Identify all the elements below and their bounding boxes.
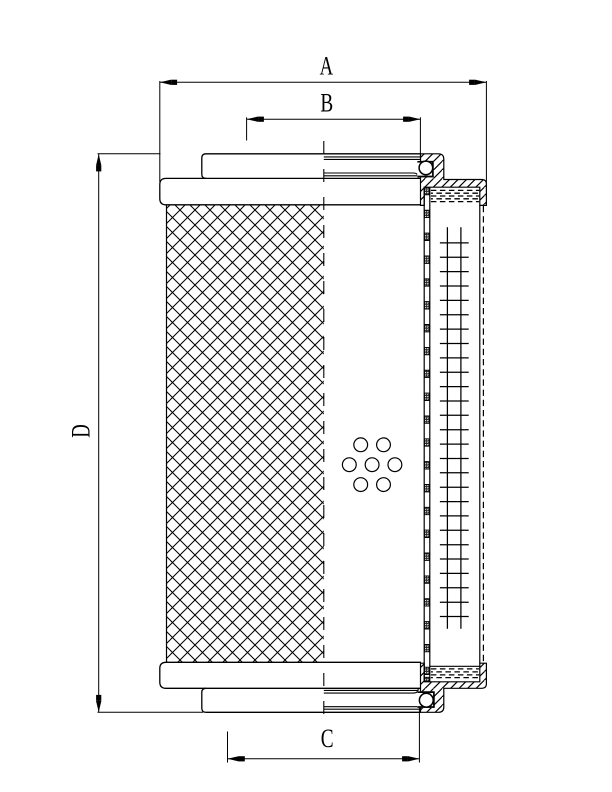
- svg-text:B: B: [320, 89, 333, 117]
- svg-text:D: D: [67, 424, 96, 438]
- svg-text:C: C: [321, 724, 334, 752]
- svg-text:A: A: [320, 52, 334, 81]
